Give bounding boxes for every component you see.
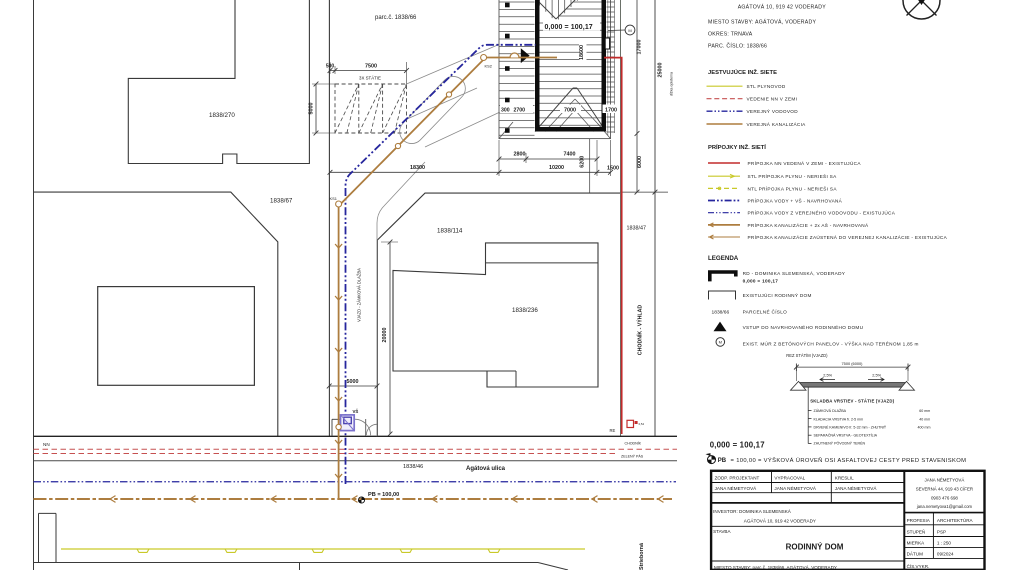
- svg-text:VEREJNÁ KANALIZÁCIA: VEREJNÁ KANALIZÁCIA: [747, 121, 807, 127]
- svg-text:JESTVUJÚCE INŽ. SIETE: JESTVUJÚCE INŽ. SIETE: [708, 68, 777, 76]
- svg-text:3X STÁTIE: 3X STÁTIE: [359, 76, 381, 81]
- svg-text:STL PRÍPOJKA PLYNU - NERIEŠI S: STL PRÍPOJKA PLYNU - NERIEŠI SA: [748, 173, 838, 179]
- svg-text:PSP: PSP: [937, 529, 946, 534]
- svg-text:2,5%: 2,5%: [872, 373, 881, 378]
- svg-text:REZ STÁTÍM (VJAZD): REZ STÁTÍM (VJAZD): [786, 353, 828, 358]
- svg-text:KS1: KS1: [330, 196, 337, 201]
- svg-text:1838/236: 1838/236: [512, 307, 538, 314]
- svg-text:7400: 7400: [564, 152, 576, 158]
- svg-text:2,5%: 2,5%: [823, 373, 832, 378]
- svg-text:1838/270: 1838/270: [209, 112, 235, 119]
- svg-text:09/2024: 09/2024: [937, 552, 954, 557]
- svg-text:NTL PRÍPOJKA PLYNU - NERIEŠI S: NTL PRÍPOJKA PLYNU - NERIEŠI SA: [748, 185, 838, 191]
- svg-text:KLADACIA VRSTVA fr. 2-5 mm: KLADACIA VRSTVA fr. 2-5 mm: [814, 417, 864, 421]
- svg-text:PRÍPOJKA NN VEDENÁ V ZEMI - EX: PRÍPOJKA NN VEDENÁ V ZEMI - EXISTUJÚCA: [748, 160, 862, 166]
- svg-text:PROFESIA: PROFESIA: [907, 518, 931, 523]
- svg-text:5000: 5000: [309, 103, 315, 115]
- svg-text:0,000 = 100,17: 0,000 = 100,17: [545, 24, 593, 31]
- svg-text:DÁTUM: DÁTUM: [907, 551, 924, 557]
- svg-text:M: M: [719, 340, 722, 345]
- svg-text:Agátová ulica: Agátová ulica: [466, 466, 506, 472]
- svg-text:400 mm: 400 mm: [918, 425, 931, 429]
- svg-text:PRÍPOJKA KANALIZÁCIE + 2x AŠ -: PRÍPOJKA KANALIZÁCIE + 2x AŠ - NAVRHOVAN…: [748, 222, 869, 228]
- svg-text:PRÍPOJKY INŽ. SIETÍ: PRÍPOJKY INŽ. SIETÍ: [708, 143, 766, 151]
- svg-text:VSTUP DO NAVRHOVANÉHO RODINNÉH: VSTUP DO NAVRHOVANÉHO RODINNÉHO DOMU: [743, 324, 864, 330]
- svg-text:SEVERNÁ 44, 919 43 CÍFER: SEVERNÁ 44, 919 43 CÍFER: [916, 487, 973, 492]
- svg-text:1838/67: 1838/67: [270, 198, 293, 205]
- svg-text:VJAZD - ZÁMKOVÁ DLAŽBA: VJAZD - ZÁMKOVÁ DLAŽBA: [357, 268, 362, 322]
- svg-text:OKRES: TRNAVA: OKRES: TRNAVA: [708, 32, 753, 38]
- svg-text:Strieborná: Strieborná: [639, 542, 645, 570]
- svg-text:PRÍPOJKA KANALIZÁCIE ZAÚSTENÁ: PRÍPOJKA KANALIZÁCIE ZAÚSTENÁ DO VEREJNE…: [748, 234, 948, 240]
- svg-text:20000: 20000: [382, 328, 388, 343]
- svg-text:2800: 2800: [514, 152, 526, 158]
- svg-text:RODINNÝ DOM: RODINNÝ DOM: [786, 543, 844, 552]
- svg-text:PARC. ČÍSLO: 1838/66: PARC. ČÍSLO: 1838/66: [708, 43, 767, 50]
- svg-text:60 mm: 60 mm: [919, 409, 930, 413]
- svg-text:0,000 = 100,17: 0,000 = 100,17: [743, 278, 779, 283]
- svg-text:7500 (6000): 7500 (6000): [842, 361, 864, 366]
- svg-text:18300: 18300: [410, 165, 425, 171]
- svg-text:VYPRACOVAL: VYPRACOVAL: [774, 476, 805, 481]
- svg-text:ZELENÝ PÁS: ZELENÝ PÁS: [621, 455, 644, 459]
- svg-text:JANA NÉMETYOVÁ: JANA NÉMETYOVÁ: [925, 477, 965, 482]
- svg-text:ZODP. PROJEKTANT: ZODP. PROJEKTANT: [715, 476, 760, 481]
- svg-text:JANA NÉMETYOVÁ: JANA NÉMETYOVÁ: [715, 485, 758, 491]
- svg-text:1838/47: 1838/47: [627, 226, 647, 232]
- svg-text:1838/114: 1838/114: [437, 228, 463, 235]
- svg-text:RD - DOMINIKA SLEMENSKÁ, VODER: RD - DOMINIKA SLEMENSKÁ, VODERADY: [743, 270, 846, 276]
- svg-text:25000: 25000: [658, 63, 664, 78]
- svg-text:parc.č. 1838/66: parc.č. 1838/66: [375, 15, 417, 21]
- svg-text:CHODNÍK: CHODNÍK: [625, 442, 642, 446]
- svg-text:PB = 100,00: PB = 100,00: [368, 492, 399, 498]
- svg-text:1700: 1700: [605, 108, 617, 114]
- svg-text:ZÁMKOVÁ DLAŽBA: ZÁMKOVÁ DLAŽBA: [814, 408, 847, 413]
- svg-text:10200: 10200: [549, 165, 564, 171]
- svg-text:5000: 5000: [347, 379, 359, 385]
- svg-text:STAVBA: STAVBA: [713, 529, 731, 534]
- svg-text:1500: 1500: [607, 166, 619, 172]
- svg-text:7500: 7500: [365, 64, 377, 70]
- svg-text:EXIST. MÚR Z BETÓNOVÝCH PANELO: EXIST. MÚR Z BETÓNOVÝCH PANELOV - VÝŠKA …: [743, 340, 919, 346]
- svg-text:40 mm: 40 mm: [919, 417, 930, 421]
- svg-text:AGÁTOVÁ 10, 919 42 VODERADY: AGÁTOVÁ 10, 919 42 VODERADY: [738, 4, 827, 11]
- svg-text:1838/46: 1838/46: [403, 464, 423, 470]
- svg-text:jana.nemetyova1@gmail.com: jana.nemetyova1@gmail.com: [916, 504, 973, 509]
- svg-text:dĺžka oplotenia: dĺžka oplotenia: [669, 72, 674, 96]
- svg-text:INVESTOR: DOMINIKA SLEMENSKÁ: INVESTOR: DOMINIKA SLEMENSKÁ: [713, 508, 792, 514]
- svg-text:VŠ: VŠ: [353, 409, 359, 414]
- svg-text:500: 500: [326, 64, 335, 70]
- svg-text:SKLADBA VRSTIEV - STÁTIE (VJAZ: SKLADBA VRSTIEV - STÁTIE (VJAZD): [810, 398, 894, 403]
- svg-text:EXISTUJÚCI RODINNÝ DOM: EXISTUJÚCI RODINNÝ DOM: [743, 292, 812, 298]
- svg-text:SEPARAČNÁ VRSTVA - GEOTEXTÍLIA: SEPARAČNÁ VRSTVA - GEOTEXTÍLIA: [814, 433, 878, 438]
- svg-text:RE: RE: [610, 428, 616, 433]
- svg-text:STUPEŇ: STUPEŇ: [907, 528, 926, 534]
- svg-text:JANA NÉMETYOVÁ: JANA NÉMETYOVÁ: [835, 485, 878, 491]
- svg-text:1 : 250: 1 : 250: [937, 541, 951, 546]
- svg-text:ČÍS.VYKR.: ČÍS.VYKR.: [907, 563, 930, 569]
- svg-text:MIERKA: MIERKA: [907, 541, 926, 546]
- svg-text:300: 300: [501, 108, 510, 114]
- svg-text:DRVENÉ KAMENIVO fr. 5-32 mm -: DRVENÉ KAMENIVO fr. 5-32 mm - ZHUTNIŤ: [814, 424, 887, 429]
- svg-text:ZHUTNENÝ PÔVODNÝ TERÉN: ZHUTNENÝ PÔVODNÝ TERÉN: [814, 441, 866, 446]
- svg-text:= 100,00 = VÝŠKOVÁ ÚROVEŇ OSI: = 100,00 = VÝŠKOVÁ ÚROVEŇ OSI ASFALTOVEJ…: [731, 457, 967, 464]
- svg-text:VEREJNÝ VODOVOD: VEREJNÝ VODOVOD: [747, 108, 799, 114]
- svg-text:MIESTO STAVBY: AGÁTOVÁ, VODERA: MIESTO STAVBY: AGÁTOVÁ, VODERADY: [708, 19, 817, 26]
- svg-text:KRESLIL: KRESLIL: [835, 476, 854, 481]
- svg-text:LEGENDA: LEGENDA: [708, 255, 739, 262]
- svg-text:0903 476 698: 0903 476 698: [931, 495, 958, 500]
- svg-text:0,54: 0,54: [639, 422, 645, 426]
- svg-text:NN: NN: [43, 442, 50, 447]
- svg-text:18600: 18600: [579, 45, 585, 60]
- svg-text:6000: 6000: [637, 156, 643, 168]
- svg-text:2700: 2700: [514, 108, 526, 114]
- svg-text:CHODNÍK - VÝHLAD: CHODNÍK - VÝHLAD: [636, 305, 644, 355]
- svg-text:0,000 = 100,17: 0,000 = 100,17: [710, 440, 765, 449]
- svg-text:1838/66: 1838/66: [712, 310, 730, 316]
- svg-text:PARCELNÉ ČÍSLO: PARCELNÉ ČÍSLO: [743, 309, 788, 315]
- svg-text:VEDENIE NN V ZEMI: VEDENIE NN V ZEMI: [747, 97, 798, 102]
- svg-text:PRÍPOJKA VODY + VŠ - NAVRHOVAN: PRÍPOJKA VODY + VŠ - NAVRHOVANÁ: [748, 197, 843, 203]
- svg-text:M: M: [628, 28, 631, 33]
- svg-text:6200: 6200: [580, 156, 586, 168]
- svg-text:PB: PB: [718, 458, 727, 464]
- svg-text:PRÍPOJKA VODY Z VEREJNÉHO VODO: PRÍPOJKA VODY Z VEREJNÉHO VODOVODU - EXI…: [748, 210, 896, 216]
- svg-text:KS2: KS2: [485, 64, 492, 69]
- svg-text:STL PLYNOVOD: STL PLYNOVOD: [747, 84, 786, 89]
- svg-text:17000: 17000: [636, 40, 642, 55]
- svg-text:ARCHITEKTÚRA: ARCHITEKTÚRA: [937, 517, 974, 523]
- svg-text:7000: 7000: [564, 108, 576, 114]
- svg-text:AGÁTOVÁ 10, 919 42 VODERADY: AGÁTOVÁ 10, 919 42 VODERADY: [744, 518, 816, 524]
- svg-text:JANA NÉMETYOVÁ: JANA NÉMETYOVÁ: [774, 485, 817, 491]
